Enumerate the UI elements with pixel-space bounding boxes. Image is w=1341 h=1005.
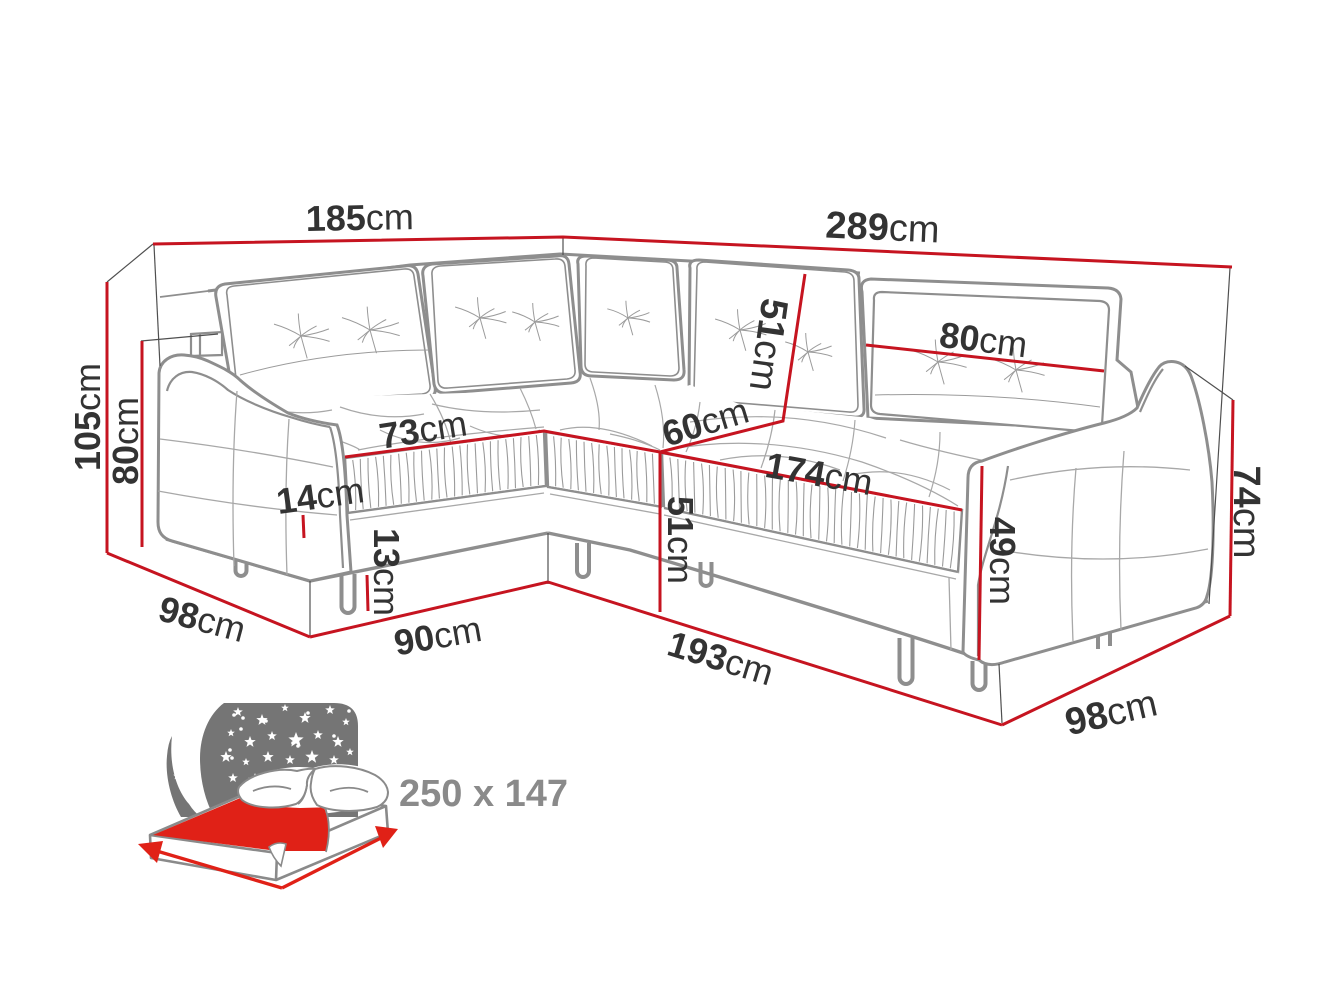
svg-text:49cm: 49cm — [982, 517, 1023, 605]
svg-text:289cm: 289cm — [825, 205, 941, 252]
svg-text:13cm: 13cm — [366, 528, 407, 616]
svg-text:51cm: 51cm — [660, 496, 701, 584]
svg-text:250 x 147: 250 x 147 — [399, 773, 568, 815]
svg-text:105cm: 105cm — [67, 363, 108, 471]
svg-text:185cm: 185cm — [305, 196, 414, 239]
svg-text:74cm: 74cm — [1225, 466, 1267, 559]
svg-text:80cm: 80cm — [105, 397, 146, 485]
